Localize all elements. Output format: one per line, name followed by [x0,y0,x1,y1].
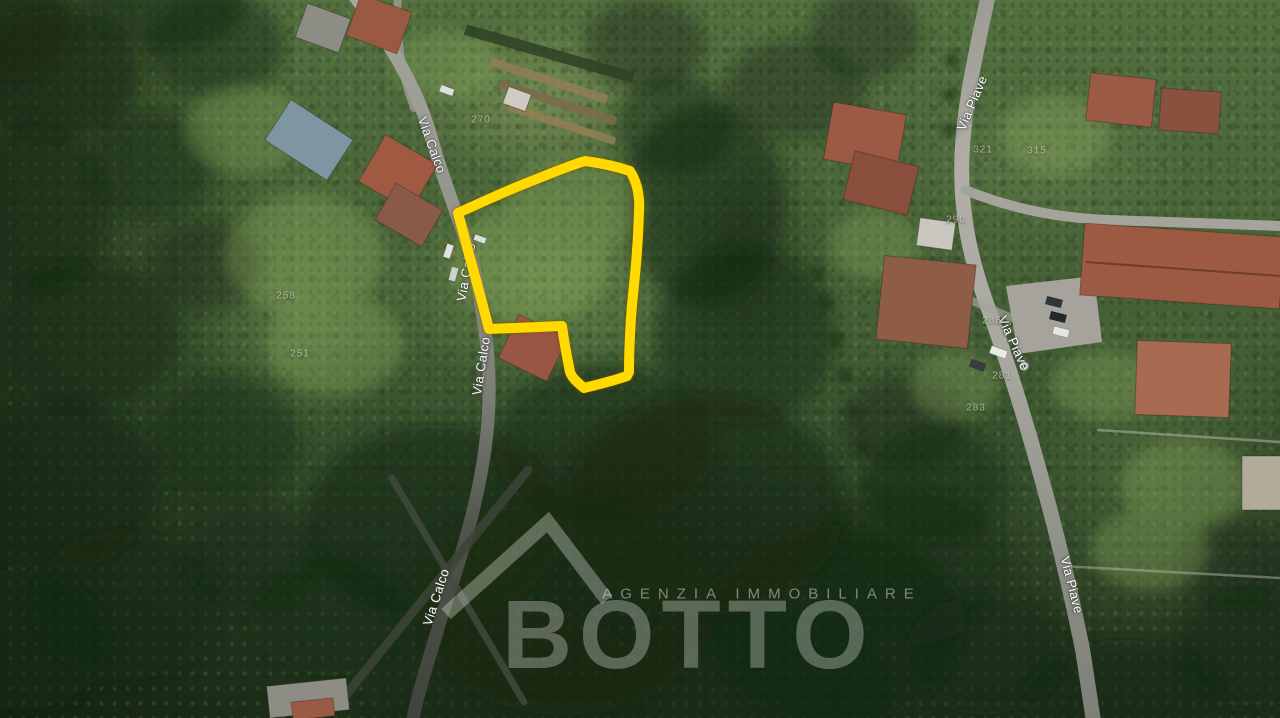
parcel-overlay [0,0,1280,718]
parcel-outline [458,161,639,388]
satellite-map[interactable]: Via Calco AGENZIA IMMOBILIARE BOTTO Via … [0,0,1280,718]
